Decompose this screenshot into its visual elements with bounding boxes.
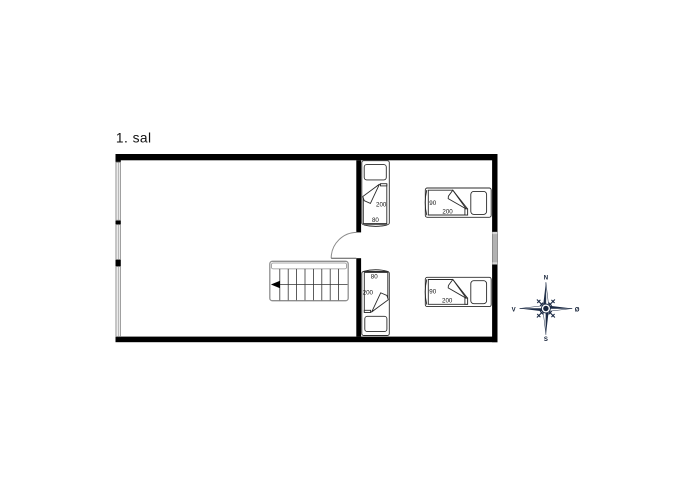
- svg-text:200: 200: [376, 202, 387, 209]
- svg-text:1. sal: 1. sal: [116, 131, 152, 146]
- svg-text:V: V: [512, 307, 516, 313]
- svg-text:90: 90: [429, 200, 436, 207]
- svg-text:80: 80: [372, 217, 379, 224]
- svg-text:80: 80: [371, 273, 378, 280]
- svg-text:Ø: Ø: [575, 307, 580, 313]
- svg-text:S: S: [544, 337, 548, 343]
- svg-text:90: 90: [429, 289, 436, 296]
- svg-text:200: 200: [442, 209, 453, 216]
- svg-text:200: 200: [363, 289, 374, 296]
- svg-text:200: 200: [442, 298, 453, 305]
- svg-text:N: N: [544, 275, 548, 281]
